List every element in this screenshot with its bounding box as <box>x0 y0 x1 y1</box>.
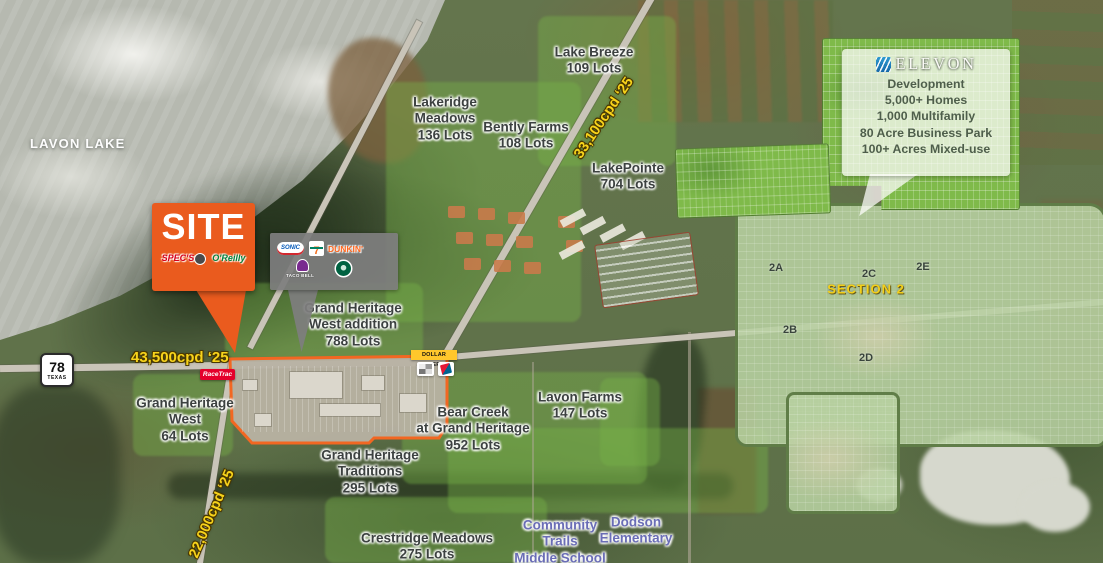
subdivision-label-lakeridge-meadows: Lakeridge Meadows 136 Lots <box>413 94 477 143</box>
elevon-section2-plan-south <box>786 392 900 514</box>
school-label-dodson: Dodson Elementary <box>600 515 673 548</box>
retail-logo-panel: SONIC 7 DUNKIN' TACO BELL <box>270 233 398 290</box>
pond <box>1020 482 1090 532</box>
elevon-line: 1,000 Multifamily <box>842 108 1010 124</box>
dominos-tile-icon <box>440 363 452 375</box>
retail-strip-building <box>320 404 380 416</box>
label-line: Grand Heritage <box>321 447 419 463</box>
site-tenant-logos: SPEC'S O'Reilly <box>152 253 255 264</box>
label-line: Meadows <box>413 111 477 127</box>
subdivision-label-crestridge: Crestridge Meadows 275 Lots <box>361 531 493 563</box>
elevon-line: 100+ Acres Mixed-use <box>842 141 1010 157</box>
lakepointe-plan <box>675 143 831 218</box>
subdivision-label-gh-west: Grand Heritage West 64 Lots <box>136 395 234 444</box>
label-line: 275 Lots <box>361 547 493 563</box>
traffic-count-west: 43,500cpd ‘25 <box>131 349 229 366</box>
site-callout: SITE SPEC'S O'Reilly <box>152 203 255 291</box>
pad-building <box>243 380 257 390</box>
label-line: 295 Lots <box>321 480 419 496</box>
elevon-brand-name: ELEVON <box>896 54 977 74</box>
label-line: Middle School <box>514 550 606 563</box>
subdivision-label-lakepointe: LakePointe 704 Lots <box>592 161 664 194</box>
farm-field <box>1012 0 1103 165</box>
subdivision-label-gh-traditions: Grand Heritage Traditions 295 Lots <box>321 447 419 496</box>
label-line: West addition <box>304 317 402 333</box>
label-line: 704 Lots <box>592 177 664 193</box>
elevon-line: Development <box>842 76 1010 92</box>
label-line: LakePointe <box>592 161 664 177</box>
anchor-store-building <box>290 372 342 398</box>
label-line: 109 Lots <box>555 61 634 77</box>
elevon-info-box: ELEVON Development 5,000+ Homes 1,000 Mu… <box>842 49 1010 176</box>
oreilly-logo: O'Reilly <box>212 253 245 263</box>
label-line: 108 Lots <box>483 136 569 152</box>
bw-storefront-logo <box>417 362 434 376</box>
section-label-2b: 2B <box>783 324 797 336</box>
label-line: Traditions <box>321 464 419 480</box>
label-line: Grand Heritage <box>304 300 402 316</box>
label-line: at Grand Heritage <box>416 421 529 437</box>
elevon-wave-icon <box>876 57 891 72</box>
section-label-2a: 2A <box>769 262 783 274</box>
dollar-general-logo: DOLLAR GENERAL <box>411 350 457 360</box>
subdivision-label-bently-farms: Bently Farms 108 Lots <box>483 120 569 153</box>
specs-logo: SPEC'S <box>162 253 206 264</box>
label-line: Elementary <box>600 531 673 547</box>
starbucks-icon <box>336 261 351 276</box>
label-line: West <box>136 412 234 428</box>
label-line: Lake Breeze <box>555 45 634 61</box>
label-line: 952 Lots <box>416 437 529 453</box>
pad-building <box>362 376 384 390</box>
apartment-blocks <box>448 206 465 218</box>
label-line: Grand Heritage <box>136 395 234 411</box>
label-line: 64 Lots <box>136 428 234 444</box>
taco-bell-bell-icon <box>297 260 308 271</box>
label-line: Dodson <box>600 515 673 531</box>
specs-terrier-icon <box>195 254 205 264</box>
site-label: SITE <box>152 209 255 245</box>
dunkin-logo: DUNKIN' <box>328 244 363 254</box>
shield-number: 78 <box>49 360 65 374</box>
label-line: 147 Lots <box>538 406 622 422</box>
county-road <box>688 332 691 563</box>
label-line: Bently Farms <box>483 120 569 136</box>
sonic-logo: SONIC <box>277 242 304 255</box>
label-line: Bear Creek <box>416 404 529 420</box>
school-label-community-trails: Community Trails Middle School <box>514 517 606 563</box>
townhome-rows <box>594 232 699 309</box>
label-line: 136 Lots <box>413 127 477 143</box>
dominos-logo <box>438 362 454 376</box>
subdivision-label-lavon-farms: Lavon Farms 147 Lots <box>538 390 622 423</box>
label-line: 788 Lots <box>304 333 402 349</box>
label-line: Crestridge Meadows <box>361 531 493 547</box>
subdivision-label-bear-creek: Bear Creek at Grand Heritage 952 Lots <box>416 404 529 453</box>
elevon-brand-row: ELEVON <box>842 54 1010 74</box>
racetrac-logo: RaceTrac <box>200 369 235 380</box>
shield-state: TEXAS <box>47 375 66 381</box>
section-label-2c: 2C <box>862 268 876 280</box>
label-line: Community <box>514 517 606 533</box>
bw-logo-glyph <box>419 364 432 374</box>
label-line: Lakeridge <box>413 94 477 110</box>
label-line: Trails <box>514 534 606 550</box>
elevon-line: 5,000+ Homes <box>842 92 1010 108</box>
label-line: Lavon Farms <box>538 390 622 406</box>
lake-label: LAVON LAKE <box>30 136 126 151</box>
subdivision-label-lake-breeze: Lake Breeze 109 Lots <box>555 45 634 78</box>
seven-eleven-green-bar <box>310 247 323 249</box>
section-label-2d: 2D <box>859 352 873 364</box>
highway-78-shield: 78 TEXAS <box>40 353 74 387</box>
subdivision-label-gh-west-addition: Grand Heritage West addition 788 Lots <box>304 300 402 349</box>
pad-building <box>255 414 271 426</box>
seven-eleven-logo: 7 <box>309 241 324 256</box>
taco-bell-text: TACO BELL <box>286 273 314 278</box>
elevon-line: 80 Acre Business Park <box>842 125 1010 141</box>
section-2-title: SECTION 2 <box>827 282 905 297</box>
specs-text: SPEC'S <box>162 253 195 263</box>
aerial-development-map: LAVON LAKE Lake Breeze 109 Lots Lakeridg… <box>0 0 1103 563</box>
section-label-2e: 2E <box>916 261 929 273</box>
